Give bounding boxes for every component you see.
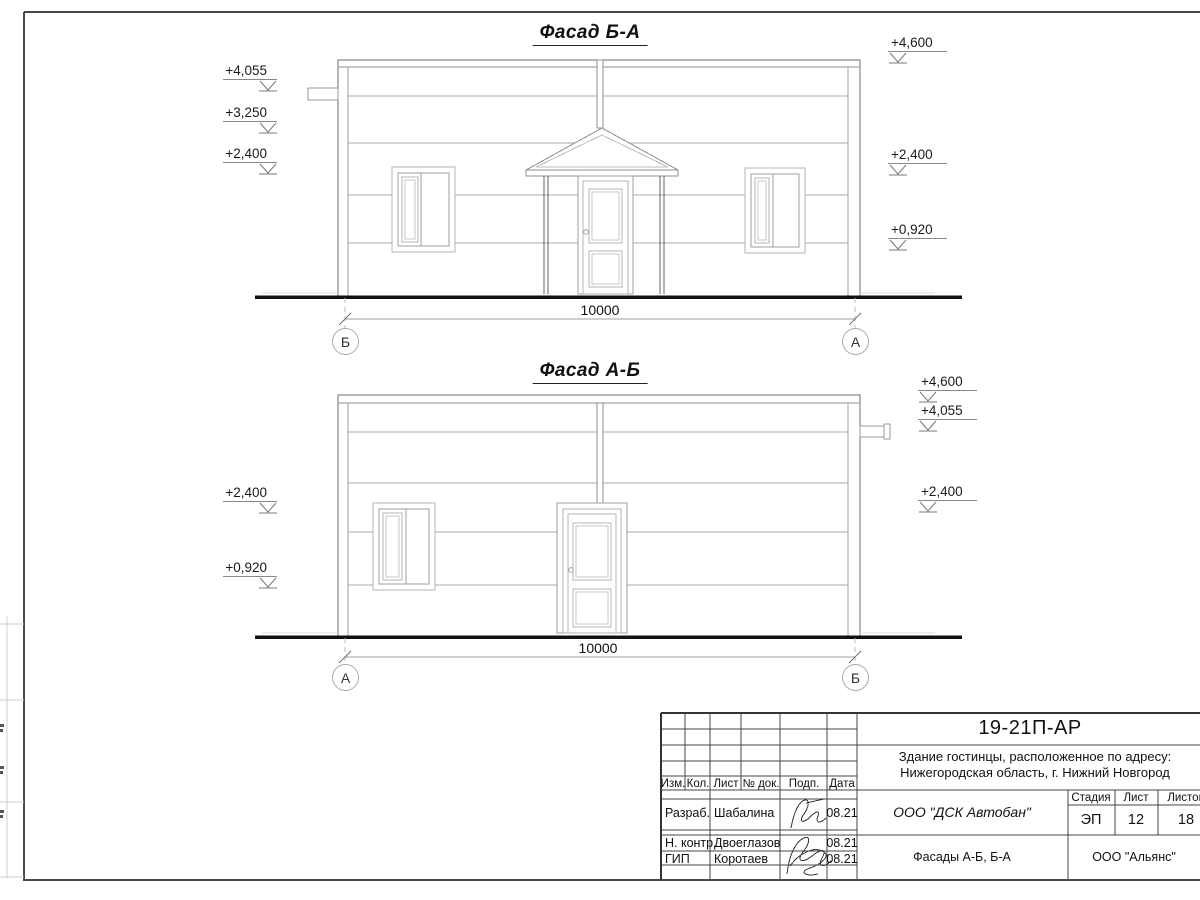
listov-label: Листов — [1167, 792, 1200, 804]
col-data: Дата — [829, 778, 854, 790]
col-podp: Подп. — [789, 778, 820, 790]
grid-bubble: Б — [332, 328, 359, 355]
elevation-arrow-icon — [889, 239, 909, 251]
facade-bottom-drawing — [255, 395, 962, 670]
signature-gip — [787, 837, 831, 875]
elevation-mark: +2,400 — [918, 485, 977, 513]
entrance-door-top — [578, 176, 633, 294]
listov-value: 18 — [1178, 812, 1194, 828]
name-gip: Коротаев — [714, 852, 768, 866]
col-doc: № док. — [743, 778, 780, 790]
elevation-arrow-icon — [919, 420, 939, 432]
entrance-door-bottom — [557, 503, 627, 633]
elevation-arrow-icon — [257, 577, 277, 589]
elevation-mark: +4,600 — [888, 36, 947, 64]
col-izm: Изм. — [661, 778, 686, 790]
elevation-arrow-icon — [919, 501, 939, 513]
stage-label: Стадия — [1071, 792, 1110, 804]
elevation-mark: +4,600 — [918, 375, 977, 403]
porch-canopy — [526, 128, 678, 176]
window-left — [392, 167, 455, 252]
col-list: Лист — [714, 778, 739, 790]
elevation-arrow-icon — [889, 164, 909, 176]
role-nkontr: Н. контр. — [665, 836, 717, 850]
date-gip: 08.21 — [826, 852, 857, 866]
dimension-label-top: 10000 — [581, 302, 620, 318]
facade-bottom-title: Фасад А-Б — [533, 360, 648, 384]
dimension-label-bottom: 10000 — [579, 640, 618, 656]
grid-bubble: Б — [842, 664, 869, 691]
elevation-mark: +4,055 — [213, 64, 277, 92]
stage-value: ЭП — [1081, 812, 1102, 828]
developer-org: ООО "ДСК Автобан" — [893, 804, 1031, 820]
elevation-mark: +0,920 — [888, 223, 947, 251]
doc-code: 19-21П-АР — [978, 717, 1081, 740]
signature-razrab — [791, 799, 826, 828]
role-razrab: Разраб. — [665, 806, 710, 820]
sheet-edge-text-fragments — [0, 724, 4, 818]
elevation-arrow-icon — [257, 80, 277, 92]
vent-pipe-bottom — [597, 403, 603, 503]
name-nkontr: Двоеглазов — [714, 836, 780, 850]
date-razrab: 08.21 — [826, 806, 857, 820]
elevation-arrow-icon — [919, 391, 939, 403]
elevation-mark: +4,055 — [918, 404, 977, 432]
wall-pipe-right — [860, 424, 890, 439]
date-nkontr: 08.21 — [826, 836, 857, 850]
grid-bubble: А — [332, 664, 359, 691]
elevation-arrow-icon — [257, 163, 277, 175]
elevation-mark: +2,400 — [213, 147, 277, 175]
facade-top-drawing — [255, 60, 962, 333]
window-left-bottom — [373, 503, 435, 590]
elevation-mark: +2,400 — [213, 486, 277, 514]
elevation-mark: +0,920 — [213, 561, 277, 589]
vent-pipe — [597, 60, 603, 128]
window-right — [745, 168, 805, 253]
drawing-sheet: Фасад Б-А Фасад А-Б +4,055 +3,250 +2,400… — [0, 0, 1200, 900]
wall-pipe-left — [308, 88, 338, 100]
elevation-mark: +3,250 — [213, 106, 277, 134]
project-address-line1: Здание гостинцы, расположенное по адресу… — [899, 749, 1171, 764]
elevation-mark: +2,400 — [888, 148, 947, 176]
elevation-arrow-icon — [889, 52, 909, 64]
list-value: 12 — [1128, 812, 1144, 828]
col-kol: Кол. — [687, 778, 710, 790]
name-razrab: Шабалина — [714, 806, 774, 820]
grid-bubble: А — [842, 328, 869, 355]
list-label: Лист — [1124, 792, 1149, 804]
sheet-edge-fragment — [0, 616, 24, 878]
drawing-title: Фасады А-Б, Б-А — [913, 850, 1011, 864]
elevation-arrow-icon — [257, 122, 277, 134]
facade-top-title: Фасад Б-А — [533, 22, 648, 46]
role-gip: ГИП — [665, 852, 690, 866]
client-org: ООО "Альянс" — [1092, 850, 1176, 864]
elevation-arrow-icon — [257, 502, 277, 514]
project-address-line2: Нижегородская область, г. Нижний Новгоро… — [900, 765, 1170, 780]
